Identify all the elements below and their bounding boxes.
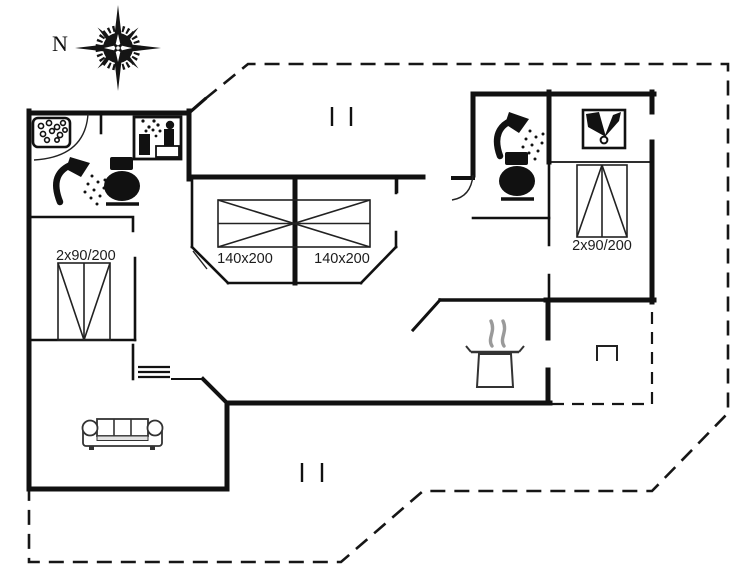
floor-plan: N 2x90/200 140x200 140x200 2x90/200 — [0, 0, 755, 566]
interior-walls — [29, 113, 652, 379]
hatch-symbol — [597, 346, 617, 361]
toilet-icon-left — [104, 157, 140, 204]
compass-north-label: N — [48, 31, 72, 57]
shower-icon-left — [56, 157, 106, 206]
sauna-icon — [134, 117, 181, 159]
toilet-icon-right — [499, 152, 535, 199]
door-swings — [34, 114, 473, 269]
stairs-symbol — [138, 367, 170, 377]
whirlpool-icon — [33, 118, 70, 147]
cooking-pot-icon — [466, 321, 524, 387]
vent-marks — [302, 107, 351, 482]
compass-rose-icon — [75, 5, 161, 91]
tv-antenna-icon — [583, 110, 625, 148]
bed-size-label-right: 2x90/200 — [572, 238, 632, 254]
bed-twin-right-icon — [577, 165, 627, 237]
bed-size-label-center-left: 140x200 — [217, 251, 273, 267]
bed-twin-left-icon — [58, 263, 110, 340]
bed-size-label-center-right: 140x200 — [314, 251, 370, 267]
sofa-icon — [83, 419, 163, 450]
bed-size-label-left: 2x90/200 — [56, 248, 114, 264]
floor-plan-canvas — [0, 0, 755, 566]
